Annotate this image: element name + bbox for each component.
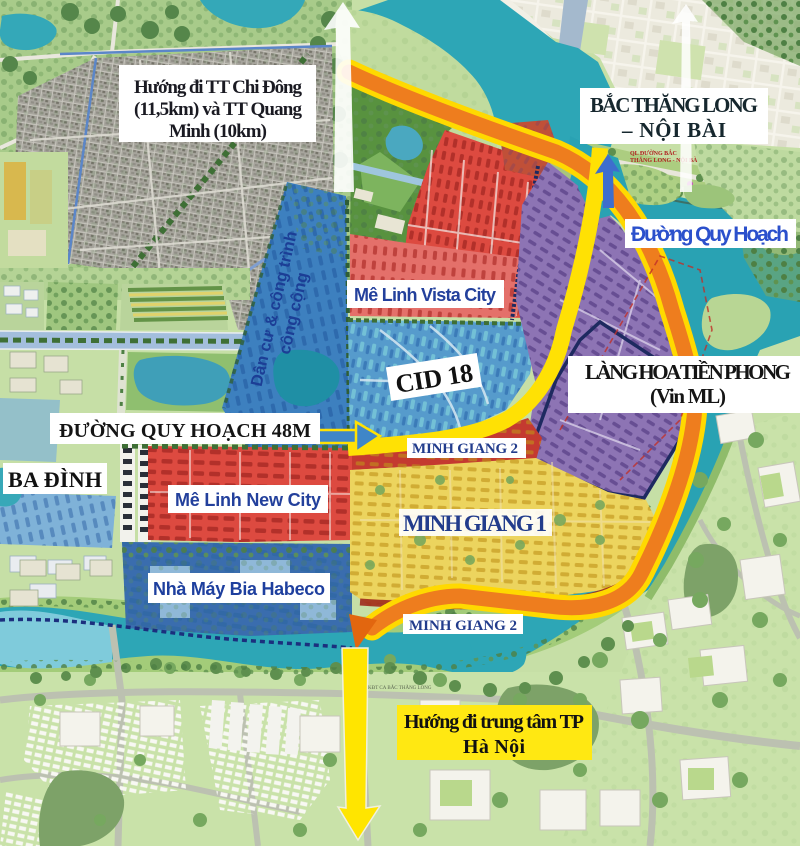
- svg-text:QL ĐƯỜNG BẮC: QL ĐƯỜNG BẮC: [630, 149, 677, 157]
- svg-text:Mê Linh New City: Mê Linh New City: [175, 490, 321, 510]
- svg-text:(11,5km) và TT Quang: (11,5km) và TT Quang: [134, 99, 303, 120]
- svg-text:– NỘI BÀI: – NỘI BÀI: [621, 118, 726, 142]
- svg-text:(Vin ML): (Vin ML): [650, 384, 726, 408]
- svg-text:Hà Nội: Hà Nội: [463, 736, 525, 758]
- svg-text:Mê Linh Vista City: Mê Linh Vista City: [354, 285, 496, 305]
- svg-text:Hướng đi TT Chi Đông: Hướng đi TT Chi Đông: [134, 77, 303, 98]
- svg-text:MINH GIANG 1: MINH GIANG 1: [403, 511, 547, 536]
- svg-text:Nhà Máy Bia Habeco: Nhà Máy Bia Habeco: [153, 579, 325, 599]
- svg-text:BẮC THĂNG LONG: BẮC THĂNG LONG: [590, 93, 758, 117]
- svg-text:LÀNG HOA TIỀN PHONG: LÀNG HOA TIỀN PHONG: [585, 360, 791, 384]
- svg-text:Minh (10km): Minh (10km): [169, 121, 267, 142]
- svg-text:MINH GIANG 2: MINH GIANG 2: [409, 618, 517, 634]
- svg-text:BA ĐÌNH: BA ĐÌNH: [8, 467, 102, 492]
- svg-text:ĐƯỜNG QUY HOẠCH 48M: ĐƯỜNG QUY HOẠCH 48M: [59, 418, 311, 442]
- svg-text:KĐT CA BẮC THĂNG LONG: KĐT CA BẮC THĂNG LONG: [368, 684, 432, 691]
- svg-text:Hướng đi trung tâm TP: Hướng đi trung tâm TP: [404, 711, 584, 733]
- svg-text:MINH GIANG 2: MINH GIANG 2: [412, 441, 518, 457]
- svg-text:Đường Quy Hoạch: Đường Quy Hoạch: [631, 223, 789, 246]
